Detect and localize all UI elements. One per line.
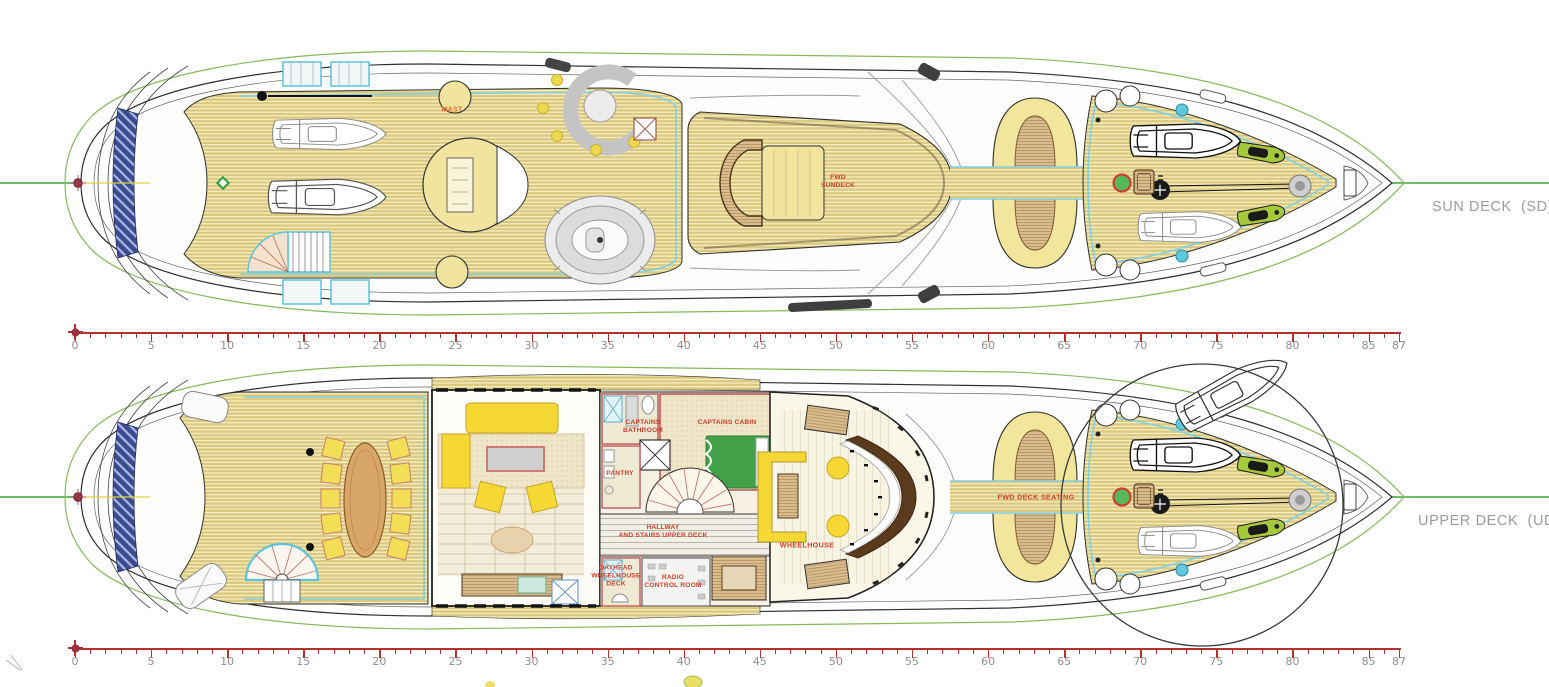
ruler-tick <box>105 333 106 338</box>
ruler-tick <box>547 649 548 654</box>
ruler-number: 50 <box>829 339 843 352</box>
ruler-tick <box>1201 649 1202 654</box>
ruler-tick <box>1019 649 1020 654</box>
ruler-number: 70 <box>1133 655 1147 668</box>
ruler-tick <box>105 649 106 654</box>
sun-deck-plan <box>65 51 1404 315</box>
ruler-tick <box>1110 333 1111 338</box>
ruler-tick <box>790 649 791 654</box>
ruler-tick <box>1156 333 1157 338</box>
ruler-tick <box>212 649 213 654</box>
captains-quarters <box>600 392 770 606</box>
ruler-number: 0 <box>72 339 79 352</box>
ruler-tick <box>242 333 243 338</box>
ruler-number: 85 <box>1362 339 1376 352</box>
ruler-tick <box>729 649 730 654</box>
ruler-tick <box>1247 333 1248 338</box>
hallway-area <box>600 514 770 556</box>
ruler-tick <box>425 649 426 654</box>
ruler-tick <box>425 333 426 338</box>
ruler-tick <box>623 333 624 338</box>
ruler-tick <box>136 649 137 654</box>
ruler-number: 15 <box>296 339 310 352</box>
ruler-tick <box>897 333 898 338</box>
ruler-tick <box>1034 649 1035 654</box>
ruler-tick <box>486 649 487 654</box>
ruler-tick <box>638 649 639 654</box>
ruler-number: 35 <box>601 339 615 352</box>
ruler-tick <box>1323 649 1324 654</box>
ruler-tick <box>1019 333 1020 338</box>
ruler-tick <box>1353 649 1354 654</box>
ruler-number: 65 <box>1057 339 1071 352</box>
ruler-tick <box>258 333 259 338</box>
ruler-number: 20 <box>372 655 386 668</box>
coffee-table <box>487 447 544 471</box>
ruler-tick <box>1353 333 1354 338</box>
ruler-tick <box>790 333 791 338</box>
ruler-tick <box>882 649 883 654</box>
ruler-tick <box>516 333 517 338</box>
ruler-tick <box>501 333 502 338</box>
ruler-tick <box>775 649 776 654</box>
ruler-tick <box>212 333 213 338</box>
ruler-tick <box>1338 333 1339 338</box>
ruler-number: 20 <box>372 339 386 352</box>
ruler-tick <box>973 649 974 654</box>
ruler-tick <box>182 649 183 654</box>
ruler-tick <box>927 333 928 338</box>
ruler-tick <box>942 649 943 654</box>
ruler-tick <box>1232 333 1233 338</box>
ruler-tick <box>166 333 167 338</box>
ruler-tick <box>334 649 335 654</box>
ruler-tick <box>1110 649 1111 654</box>
ruler-tick <box>638 333 639 338</box>
lounge-bar-cabinet <box>462 574 562 596</box>
ruler-tick <box>471 333 472 338</box>
lounge-sofa <box>466 403 558 433</box>
ruler-tick <box>1232 649 1233 654</box>
ruler-tick <box>1095 649 1096 654</box>
ruler-tick <box>258 649 259 654</box>
ruler-tick <box>745 333 746 338</box>
ruler-number: 50 <box>829 655 843 668</box>
ruler-tick <box>1171 333 1172 338</box>
jacuzzi <box>545 196 655 284</box>
ruler-tick <box>349 333 350 338</box>
ruler-tick <box>927 649 928 654</box>
ruler-number: 75 <box>1209 339 1223 352</box>
ruler-number: 45 <box>753 655 767 668</box>
ruler-tick <box>699 333 700 338</box>
ruler-tick <box>821 649 822 654</box>
sky-lounge <box>432 390 600 606</box>
ruler-tick <box>1171 649 1172 654</box>
ruler-sun-deck: 051015202530354045505560657075808587 <box>0 322 1549 356</box>
ruler-number: 65 <box>1057 655 1071 668</box>
ruler-tick <box>1095 333 1096 338</box>
ruler-tick <box>364 333 365 338</box>
ruler-tick <box>745 649 746 654</box>
ruler-tick <box>516 649 517 654</box>
ruler-number: 87 <box>1392 339 1406 352</box>
ruler-tick <box>410 649 411 654</box>
ruler-tick <box>729 333 730 338</box>
ruler-number: 60 <box>981 655 995 668</box>
ruler-tick <box>866 649 867 654</box>
ruler-tick <box>90 333 91 338</box>
ruler-tick <box>273 649 274 654</box>
ruler-tick <box>486 333 487 338</box>
ruler-number: 10 <box>220 655 234 668</box>
ruler-tick <box>851 649 852 654</box>
sun-deck-label: SUN DECK (SD) <box>1432 199 1549 215</box>
ruler-number: 5 <box>148 655 155 668</box>
ruler-tick <box>669 333 670 338</box>
ruler-number: 0 <box>72 655 79 668</box>
ruler-number: 30 <box>525 339 539 352</box>
ruler-tick <box>577 333 578 338</box>
ruler-tick <box>1079 333 1080 338</box>
ruler-tick <box>318 333 319 338</box>
ruler-number: 40 <box>677 339 691 352</box>
upper-deck-label: UPPER DECK (UD) <box>1418 513 1549 529</box>
ruler-tick <box>1125 333 1126 338</box>
ruler-tick <box>318 649 319 654</box>
ruler-number: 35 <box>601 655 615 668</box>
ruler-tick <box>897 649 898 654</box>
ruler-tick <box>547 333 548 338</box>
ruler-tick <box>197 333 198 338</box>
ruler-tick <box>288 649 289 654</box>
ruler-tick <box>1125 649 1126 654</box>
ruler-tick <box>714 333 715 338</box>
ruler-tick <box>866 333 867 338</box>
ruler-tick <box>471 649 472 654</box>
ruler-tick <box>395 333 396 338</box>
dining-table <box>344 443 386 557</box>
ruler-tick <box>166 649 167 654</box>
ruler-tick <box>1338 649 1339 654</box>
ruler-tick <box>288 333 289 338</box>
ruler-tick <box>1277 649 1278 654</box>
ruler-number: 85 <box>1362 655 1376 668</box>
ruler-upper-deck: 051015202530354045505560657075808587 <box>0 638 1549 672</box>
stowed-rib-icon <box>268 179 386 215</box>
ruler-tick <box>1201 333 1202 338</box>
ruler-tick <box>410 333 411 338</box>
ruler-tick <box>242 649 243 654</box>
ruler-tick <box>90 649 91 654</box>
ruler-tick <box>364 649 365 654</box>
ruler-tick <box>1156 649 1157 654</box>
ruler-number: 10 <box>220 339 234 352</box>
ruler-number: 40 <box>677 655 691 668</box>
ruler-number: 15 <box>296 655 310 668</box>
ruler-tick <box>714 649 715 654</box>
ruler-tick <box>1384 333 1385 338</box>
ruler-number: 60 <box>981 339 995 352</box>
fwd-sundeck-seating <box>688 112 952 254</box>
ruler-tick <box>1384 649 1385 654</box>
ruler-number: 5 <box>148 339 155 352</box>
ruler-tick <box>182 333 183 338</box>
ruler-tick <box>349 649 350 654</box>
ruler-number: 80 <box>1285 655 1299 668</box>
ruler-tick <box>395 649 396 654</box>
ruler-tick <box>440 333 441 338</box>
ruler-tick <box>1003 333 1004 338</box>
ruler-tick <box>958 649 959 654</box>
ruler-tick <box>942 333 943 338</box>
ruler-tick <box>501 649 502 654</box>
ruler-tick <box>577 649 578 654</box>
ruler-number: 80 <box>1285 339 1299 352</box>
ruler-tick <box>958 333 959 338</box>
ruler-tick <box>1003 649 1004 654</box>
ruler-tick <box>592 333 593 338</box>
ruler-tick <box>1262 333 1263 338</box>
ruler-tick <box>1277 333 1278 338</box>
ruler-tick <box>1186 333 1187 338</box>
ruler-tick <box>197 649 198 654</box>
ruler-tick <box>805 649 806 654</box>
ruler-number: 55 <box>905 339 919 352</box>
ruler-tick <box>882 333 883 338</box>
helm-chair <box>827 515 849 537</box>
ruler-number: 30 <box>525 655 539 668</box>
ruler-number: 25 <box>448 655 462 668</box>
helm-chair <box>827 457 849 479</box>
ruler-tick <box>699 649 700 654</box>
ruler-tick <box>851 333 852 338</box>
ruler-tick <box>1323 333 1324 338</box>
ruler-tick <box>1262 649 1263 654</box>
ruler-tick <box>1308 649 1309 654</box>
ruler-tick <box>334 333 335 338</box>
ruler-tick <box>775 333 776 338</box>
ruler-tick <box>821 333 822 338</box>
ruler-tick <box>1049 649 1050 654</box>
ruler-tick <box>973 333 974 338</box>
ruler-tick <box>440 649 441 654</box>
ruler-number: 45 <box>753 339 767 352</box>
ruler-tick <box>562 333 563 338</box>
ruler-tick <box>1247 649 1248 654</box>
ruler-tick <box>1049 333 1050 338</box>
sundeck-sunpad <box>762 146 824 220</box>
ruler-number: 55 <box>905 655 919 668</box>
ruler-tick <box>592 649 593 654</box>
ruler-tick <box>121 649 122 654</box>
ruler-number: 25 <box>448 339 462 352</box>
ruler-tick <box>805 333 806 338</box>
ruler-tick <box>1079 649 1080 654</box>
ruler-number: 87 <box>1392 655 1406 668</box>
ruler-tick <box>1308 333 1309 338</box>
ruler-tick <box>273 333 274 338</box>
ruler-number: 75 <box>1209 655 1223 668</box>
yacht-deck-plans-page: 051015202530354045505560657075808587 051… <box>0 0 1549 687</box>
ruler-tick <box>1034 333 1035 338</box>
ruler-tick <box>653 333 654 338</box>
ruler-number: 70 <box>1133 339 1147 352</box>
ruler-tick <box>136 333 137 338</box>
ruler-tick <box>562 649 563 654</box>
ruler-tick <box>121 333 122 338</box>
ruler-tick <box>1186 649 1187 654</box>
ruler-tick <box>623 649 624 654</box>
ruler-tick <box>669 649 670 654</box>
ruler-tick <box>653 649 654 654</box>
